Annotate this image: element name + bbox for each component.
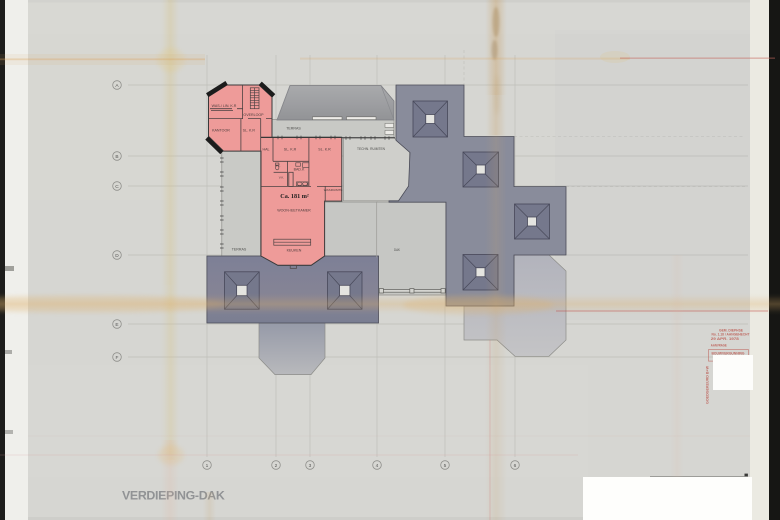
svg-text:E: E <box>115 322 118 328</box>
svg-text:SL. K.R: SL. K.R <box>284 147 297 151</box>
svg-text:4: 4 <box>376 463 379 469</box>
svg-text:3: 3 <box>309 463 312 469</box>
svg-text:GOEDGEKEURD B+W: GOEDGEKEURD B+W <box>706 366 710 404</box>
svg-text:5: 5 <box>444 463 447 469</box>
svg-text:V.K.: V.K. <box>279 176 285 180</box>
svg-text:D: D <box>115 253 119 259</box>
svg-text:WOON-/EETKAMER: WOON-/EETKAMER <box>277 209 311 213</box>
svg-text:WAS-/ LIN. K.R: WAS-/ LIN. K.R <box>212 104 237 108</box>
svg-text:1: 1 <box>206 463 209 469</box>
svg-text:W.C.: W.C. <box>275 163 281 167</box>
svg-text:SL. K.R: SL. K.R <box>318 147 331 151</box>
svg-text:BOUWVERGUNNING: BOUWVERGUNNING <box>712 351 746 355</box>
svg-text:KANTOOR: KANTOOR <box>212 129 230 133</box>
svg-text:KEUKEN: KEUKEN <box>287 249 302 253</box>
svg-text:DAK: DAK <box>394 248 400 252</box>
svg-text:WASRUIMTE: WASRUIMTE <box>324 188 343 192</box>
svg-text:TECHN. RUIMTEN: TECHN. RUIMTEN <box>357 147 385 151</box>
svg-text:TERRAS: TERRAS <box>232 248 247 252</box>
svg-text:No. 1.18 / AANGEHECHT: No. 1.18 / AANGEHECHT <box>712 333 750 337</box>
svg-text:Ca. 181 m²: Ca. 181 m² <box>280 193 309 200</box>
svg-text:C: C <box>115 184 119 190</box>
svg-text:SL. K.R: SL. K.R <box>243 129 256 133</box>
svg-text:OVERLOOP: OVERLOOP <box>243 113 264 117</box>
svg-text:B: B <box>115 154 118 160</box>
svg-text:29 APR. 1978: 29 APR. 1978 <box>711 337 739 341</box>
svg-text:6: 6 <box>514 463 517 469</box>
svg-text:F: F <box>116 355 119 361</box>
svg-text:AANVRAGE: AANVRAGE <box>711 343 727 347</box>
svg-text:HAL: HAL <box>263 148 270 152</box>
svg-text:TERRAS: TERRAS <box>286 126 301 130</box>
svg-text:BAD.K: BAD.K <box>294 167 305 171</box>
svg-text:2: 2 <box>275 463 278 469</box>
